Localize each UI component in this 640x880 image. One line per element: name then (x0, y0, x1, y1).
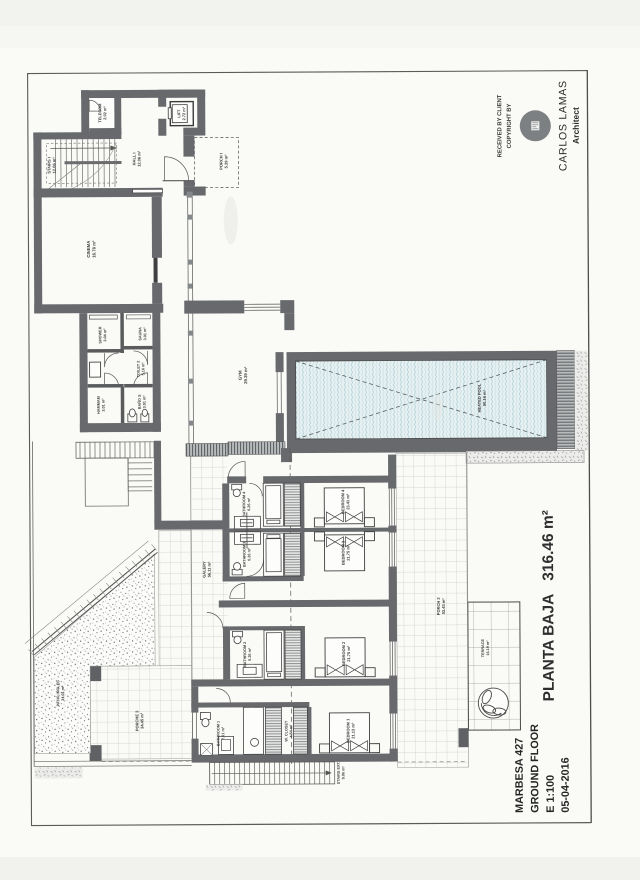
svg-text:PLANTA BAJA 316.46 m²: PLANTA BAJA 316.46 m² (540, 510, 558, 701)
svg-text:RECEIVED BY CLIENT: RECEIVED BY CLIENT (497, 94, 503, 157)
svg-text:SHOWER3.04 m²: SHOWER3.04 m² (98, 326, 107, 343)
svg-text:TELECOM2.02 m²: TELECOM2.02 m² (97, 104, 107, 123)
svg-text:COPYRIGHT BY: COPYRIGHT BY (507, 103, 513, 148)
svg-text:PORCHE 334.45 m²: PORCHE 334.45 m² (134, 710, 144, 731)
svg-text:Architect: Architect (571, 107, 581, 144)
svg-text:CARLOS LAMAS: CARLOS LAMAS (557, 80, 569, 171)
svg-text:CINEMA16.78 m²: CINEMA16.78 m² (86, 240, 97, 258)
svg-text:PORCH 253.43 m²: PORCH 253.43 m² (436, 597, 446, 616)
svg-text:HAMMAM3.01 m²: HAMMAM3.01 m² (97, 396, 106, 414)
svg-text:05-04-2016: 05-04-2016 (560, 757, 572, 812)
svg-text:MARBESA 427: MARBESA 427 (514, 738, 526, 813)
svg-text:BAÑO S3.01 m²: BAÑO S3.01 m² (137, 394, 147, 409)
svg-text:PORCH I5.39 m²: PORCH I5.39 m² (218, 153, 228, 170)
svg-text:TERRACE16.19 m²: TERRACE16.19 m² (481, 638, 490, 657)
svg-text:GALERY56.11 m²: GALERY56.11 m² (202, 561, 212, 578)
svg-text:HALL I12.06 m²: HALL I12.06 m² (131, 150, 141, 167)
svg-text:E 1:100: E 1:100 (545, 775, 557, 813)
svg-text:GROUND FLOOR: GROUND FLOOR (529, 724, 541, 813)
svg-text:STAIRS I12.06 m²: STAIRS I12.06 m² (46, 157, 56, 174)
svg-text:SAUNA3.01 m²: SAUNA3.01 m² (138, 327, 147, 341)
